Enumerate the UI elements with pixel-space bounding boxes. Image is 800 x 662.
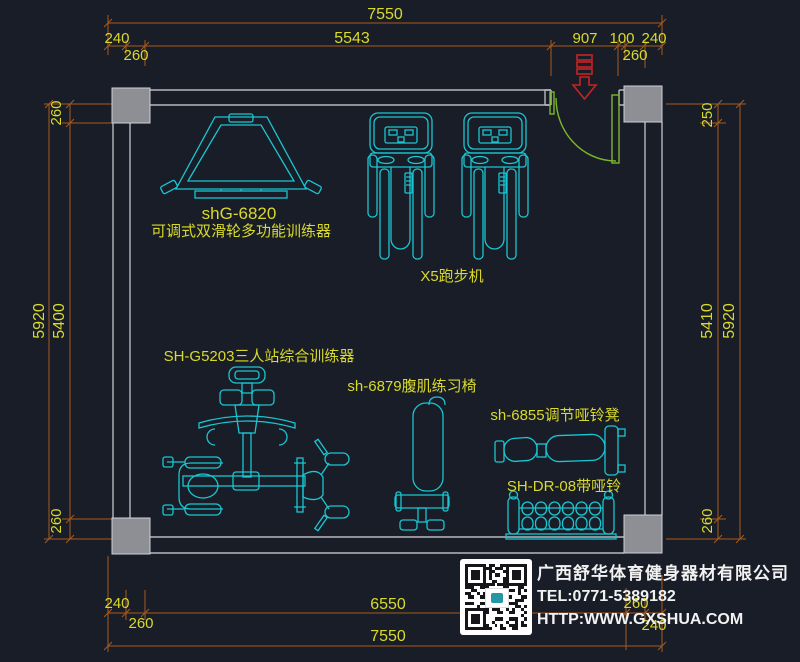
dim-right-260-bottom: 260 [699, 508, 716, 533]
dim-right-250-top: 250 [699, 102, 716, 127]
company-website: HTTP:WWW.GXSHUA.COM [537, 608, 789, 631]
equipment-pulley-trainer [160, 114, 322, 198]
dim-top-240-left: 240 [104, 30, 129, 47]
company-name: 广西舒华体育健身器材有限公司 [537, 563, 789, 585]
entrance-arrow-icon [573, 55, 596, 99]
equipment-dumbbell-bench [495, 426, 625, 475]
equipment-multi-station [163, 367, 349, 531]
dim-right-5410: 5410 [699, 303, 716, 339]
dim-bottom-6550: 6550 [370, 596, 406, 613]
label-dumbbell-bench: sh-6855调节哑铃凳 [490, 407, 619, 424]
qr-code [460, 559, 532, 635]
dim-top-907: 907 [572, 30, 597, 47]
dim-bottom-total: 7550 [370, 628, 406, 645]
label-treadmill: X5跑步机 [420, 268, 483, 285]
dim-left-260-bottom: 260 [48, 508, 65, 533]
equipment-treadmill-1 [368, 113, 434, 259]
qr-logo [485, 588, 509, 608]
dim-top-total: 7550 [367, 6, 403, 23]
column-bottom-right [624, 515, 662, 553]
dim-left-260-top: 260 [48, 100, 65, 125]
dim-top-260-left: 260 [123, 47, 148, 64]
equipment-treadmill-2 [462, 113, 528, 259]
equipment-ab-chair [395, 397, 449, 530]
label-multi-station: SH-G5203三人站综合训练器 [164, 348, 355, 365]
company-info: 广西舒华体育健身器材有限公司 TEL:0771-5389182 HTTP:WWW… [537, 563, 789, 631]
dim-top-100: 100 [609, 30, 634, 47]
column-top-left [112, 88, 150, 123]
dim-bottom-260-left: 260 [128, 615, 153, 632]
label-pulley-trainer-model: shG-6820 [202, 204, 277, 223]
dim-top-240-right: 240 [641, 30, 666, 47]
door-swing [550, 92, 619, 163]
column-top-right [624, 86, 662, 122]
column-bottom-left [112, 518, 150, 554]
dim-left-5920: 5920 [31, 303, 48, 339]
dim-left-5400: 5400 [51, 303, 68, 339]
label-dumbbell-rack: SH-DR-08带哑铃 [507, 478, 621, 495]
dim-right-5920: 5920 [721, 303, 738, 339]
label-ab-chair: sh-6879腹肌练习椅 [347, 378, 476, 395]
dim-top-5543: 5543 [334, 30, 370, 47]
dim-bottom-240-left: 240 [104, 595, 129, 612]
dim-top-260-right: 260 [622, 47, 647, 64]
label-pulley-trainer-name: 可调式双滑轮多功能训练器 [151, 223, 331, 240]
cad-canvas: 7550 240 5543 907 100 240 260 260 260 59… [0, 0, 800, 662]
equipment-dumbbell-rack [506, 491, 616, 539]
company-tel: TEL:0771-5389182 [537, 585, 789, 608]
